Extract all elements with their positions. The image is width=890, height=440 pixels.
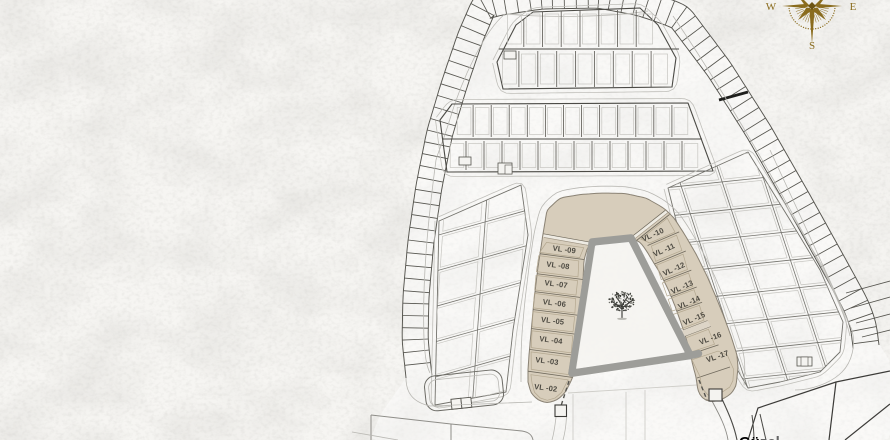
svg-text:W: W [766,1,777,13]
svg-text:E: E [850,1,857,13]
svg-text:Güzel: Güzel [739,434,780,440]
svg-text:S: S [809,40,815,52]
